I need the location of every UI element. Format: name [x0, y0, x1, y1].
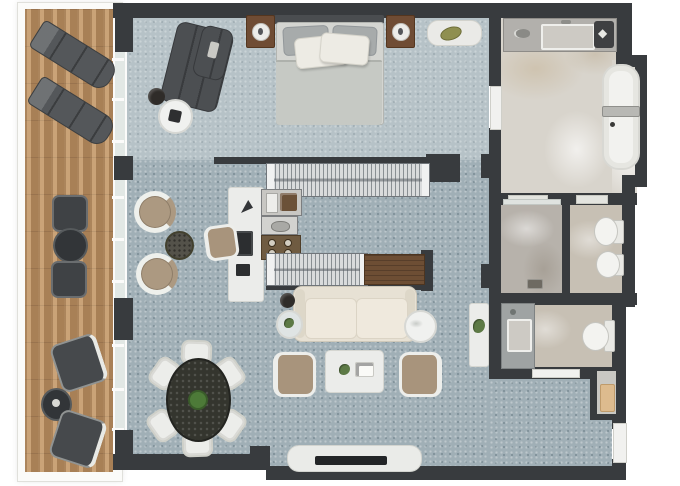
- cup-on-table: [52, 399, 60, 407]
- wall-bottom-notch: [250, 446, 270, 470]
- vanity-sink: [541, 24, 595, 50]
- powder-vanity: [501, 303, 535, 369]
- decorative-bowl: [148, 88, 165, 105]
- wc-door-threshold: [576, 195, 608, 204]
- window-mullion: [112, 196, 124, 199]
- tub-drain: [610, 122, 615, 127]
- oven-unit: [261, 189, 302, 216]
- window-mullion: [112, 280, 124, 283]
- marble-side-table: [404, 310, 437, 343]
- bag-on-bench: [439, 24, 464, 43]
- bidet: [596, 251, 620, 278]
- bistro-chair: [52, 195, 88, 232]
- bedroom-bench: [427, 20, 482, 46]
- wall-window-pier: [114, 298, 133, 340]
- powder-toilet: [582, 322, 609, 351]
- wall-pier-a: [481, 154, 501, 178]
- burner: [284, 239, 292, 247]
- desk-chair: [203, 223, 241, 262]
- wall-wardrobe-stub: [426, 154, 460, 182]
- dining-centerpiece-plant: [188, 390, 208, 410]
- appliance-front: [280, 193, 297, 211]
- wall-nook-left: [590, 369, 597, 418]
- wall-bedroom-bath-upper: [489, 14, 501, 86]
- armchair: [136, 253, 178, 295]
- bathroom-vanity: ◆: [503, 18, 617, 52]
- plant-on-coffee-table: [339, 364, 350, 375]
- counter-wood-top: [364, 254, 425, 285]
- window-mullion: [112, 140, 124, 143]
- sofa: [293, 286, 417, 342]
- lamp-finial: [398, 28, 403, 35]
- wall-pier-b: [481, 264, 501, 288]
- bed-duvet: [276, 60, 382, 125]
- wc-room-floor: [568, 203, 622, 295]
- lamp-finial: [258, 28, 263, 35]
- table-lamp-sphere: [280, 293, 295, 308]
- tray-on-coffee-table: [355, 362, 374, 377]
- lower-counter: [266, 253, 368, 286]
- powder-sink: [507, 319, 532, 352]
- lounge-chair: [273, 352, 316, 397]
- hall-console: [469, 303, 489, 367]
- nightstand: [386, 15, 415, 48]
- floor-plan: ◆: [0, 0, 680, 486]
- bistro-table: [53, 228, 88, 263]
- window-mullion: [112, 98, 124, 101]
- tray-ornament-icon: ◆: [598, 27, 607, 39]
- sink-unit: [261, 216, 298, 235]
- sitting-side-table: [165, 231, 194, 260]
- luggage-rack: [600, 384, 615, 412]
- potted-plant: [284, 318, 294, 328]
- wall-nook-bottom: [590, 413, 620, 420]
- burner: [268, 239, 276, 247]
- plant-on-console: [473, 319, 485, 333]
- shower-glass-door: [503, 199, 561, 205]
- sofa-cushion: [305, 298, 357, 339]
- window-mullion: [112, 238, 124, 241]
- wall-window-pier: [115, 14, 133, 52]
- lounge-chair: [399, 352, 442, 397]
- bedroom-bathroom-door: [490, 86, 502, 130]
- shower-drain: [527, 279, 543, 289]
- desk-accessory: [236, 264, 250, 276]
- nightstand: [246, 15, 275, 48]
- bed-pillow: [319, 32, 370, 66]
- oven-door: [266, 193, 278, 213]
- desk-phone: [241, 200, 253, 213]
- window-mullion: [112, 344, 124, 347]
- phone-on-chaise: [207, 41, 220, 59]
- entrance-door: [613, 423, 627, 463]
- tray-on-table: [168, 109, 182, 123]
- sink-basin: [271, 221, 290, 232]
- window-mullion: [112, 388, 124, 391]
- wall-window-pier: [114, 156, 133, 180]
- powder-faucet: [510, 309, 516, 315]
- sofa-cushion: [356, 298, 408, 339]
- tv: [315, 456, 387, 465]
- window-glass-wall: [113, 14, 127, 460]
- toilet: [594, 217, 618, 246]
- armchair: [134, 191, 176, 233]
- plant-side-table: [276, 310, 303, 339]
- tub-fittings: [602, 106, 640, 117]
- freestanding-bathtub: [602, 64, 640, 170]
- coffee-table: [325, 350, 384, 393]
- soap-dish: [514, 29, 530, 38]
- bistro-chair: [51, 261, 87, 298]
- powder-room-door: [532, 369, 580, 378]
- wall-window-pier: [115, 430, 133, 458]
- chaise-side-table: [158, 99, 193, 134]
- faucet: [561, 20, 571, 24]
- window-mullion: [112, 58, 124, 61]
- wall-shower-wc-divider: [562, 198, 570, 301]
